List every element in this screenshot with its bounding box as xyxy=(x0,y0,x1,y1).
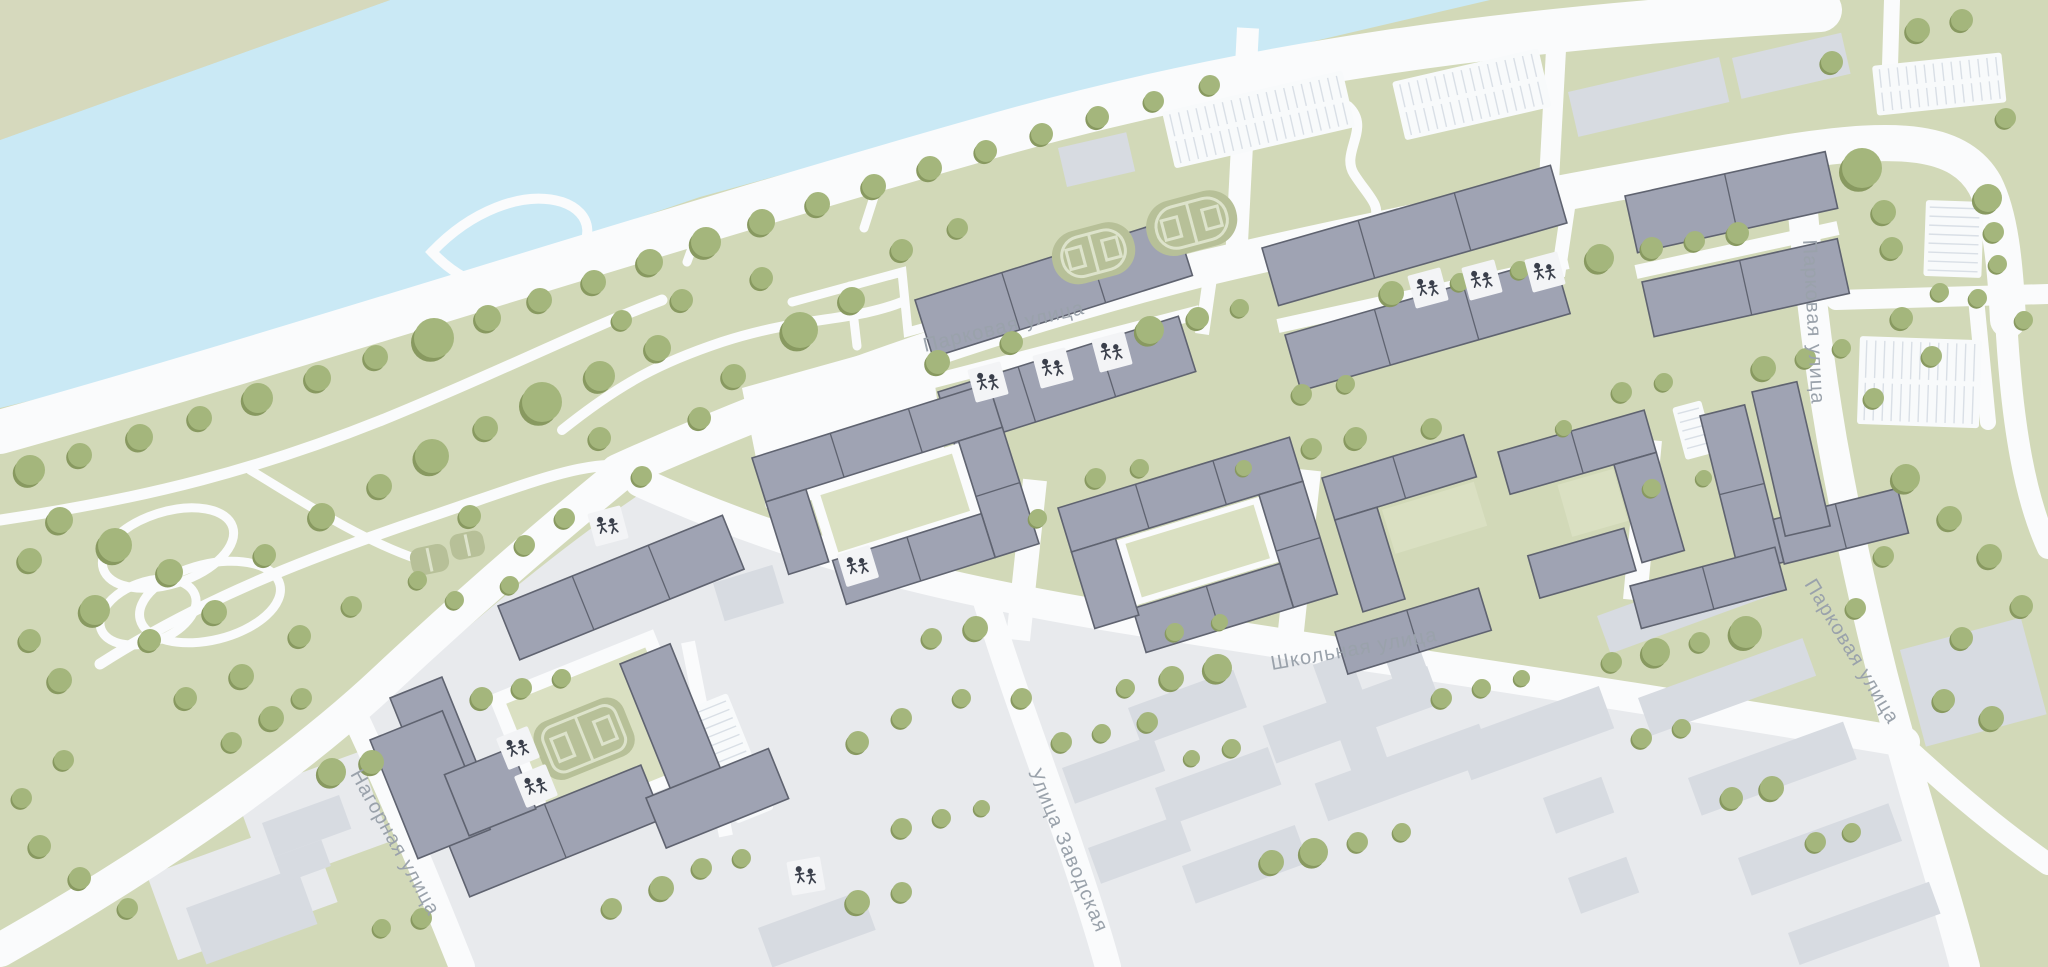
tree-icon xyxy=(553,669,571,687)
tree-icon xyxy=(751,267,773,289)
tree-icon xyxy=(471,687,493,709)
tree-icon xyxy=(230,664,254,688)
tree-icon xyxy=(1969,289,1987,307)
tree-icon xyxy=(1612,382,1632,402)
tree-icon xyxy=(1721,787,1743,809)
tree-icon xyxy=(1974,184,2002,212)
tree-icon xyxy=(1641,237,1663,259)
tree-icon xyxy=(48,668,72,692)
tree-icon xyxy=(1730,616,1762,648)
tree-icon xyxy=(409,571,427,589)
tree-icon xyxy=(501,576,519,594)
tree-icon xyxy=(645,335,671,361)
tree-icon xyxy=(691,227,721,257)
tree-icon xyxy=(98,528,132,562)
tree-icon xyxy=(446,591,464,609)
tree-icon xyxy=(415,439,449,473)
tree-icon xyxy=(414,318,454,358)
tree-icon xyxy=(18,548,42,572)
tree-icon xyxy=(1881,237,1903,259)
tree-icon xyxy=(1138,712,1158,732)
tree-icon xyxy=(602,898,622,918)
tree-icon xyxy=(692,858,712,878)
tree-icon xyxy=(342,596,362,616)
tree-icon xyxy=(1632,728,1652,748)
tree-icon xyxy=(309,503,335,529)
tree-icon xyxy=(1752,356,1776,380)
tree-icon xyxy=(1260,850,1284,874)
tree-icon xyxy=(1052,732,1072,752)
tree-icon xyxy=(1093,724,1111,742)
tree-icon xyxy=(1473,679,1491,697)
tree-icon xyxy=(305,365,331,391)
tree-icon xyxy=(1727,222,1749,244)
tree-icon xyxy=(612,310,632,330)
tree-icon xyxy=(1087,106,1109,128)
tree-icon xyxy=(1892,464,1920,492)
tree-icon xyxy=(69,867,91,889)
tree-icon xyxy=(1184,750,1200,766)
tree-icon xyxy=(1086,468,1106,488)
tree-icon xyxy=(585,361,615,391)
tree-icon xyxy=(637,249,663,275)
tree-icon xyxy=(1951,627,1973,649)
tree-icon xyxy=(1200,75,1220,95)
tree-icon xyxy=(1348,832,1368,852)
tree-icon xyxy=(1643,479,1661,497)
tree-icon xyxy=(368,474,392,498)
tree-icon xyxy=(650,876,674,900)
tree-icon xyxy=(1872,200,1896,224)
tree-icon xyxy=(29,835,51,857)
tree-icon xyxy=(1984,222,2004,242)
tree-icon xyxy=(1160,666,1184,690)
tree-icon xyxy=(1586,244,1614,272)
tree-icon xyxy=(1144,91,1164,111)
tree-icon xyxy=(139,629,161,651)
tree-icon xyxy=(1236,460,1252,476)
tree-icon xyxy=(1760,776,1784,800)
tree-icon xyxy=(222,732,242,752)
tree-icon xyxy=(1422,418,1442,438)
tree-icon xyxy=(1842,148,1882,188)
tree-icon xyxy=(175,687,197,709)
tree-icon xyxy=(459,505,481,527)
tree-icon xyxy=(1922,346,1942,366)
tree-icon xyxy=(733,849,751,867)
tree-icon xyxy=(318,758,346,786)
tree-icon xyxy=(1031,123,1053,145)
tree-icon xyxy=(1187,307,1209,329)
tree-icon xyxy=(1393,823,1411,841)
tree-icon xyxy=(118,898,138,918)
tree-icon xyxy=(974,800,990,816)
tree-icon xyxy=(891,239,913,261)
tree-icon xyxy=(975,140,997,162)
tree-icon xyxy=(243,383,273,413)
tree-icon xyxy=(1864,388,1884,408)
tree-icon xyxy=(1345,427,1367,449)
tree-icon xyxy=(806,192,830,216)
tree-icon xyxy=(892,708,912,728)
tree-icon xyxy=(1806,832,1826,852)
tree-icon xyxy=(1204,654,1232,682)
tree-icon xyxy=(1933,689,1955,711)
tree-icon xyxy=(892,818,912,838)
corner-road xyxy=(1890,0,1892,66)
masterplan-map: Парковая улица Парковая улица Парковая у… xyxy=(0,0,2048,967)
tree-icon xyxy=(1223,739,1241,757)
tree-icon xyxy=(1996,108,2016,128)
tree-icon xyxy=(515,535,535,555)
tree-icon xyxy=(722,364,746,388)
tree-icon xyxy=(1938,506,1962,530)
tree-icon xyxy=(555,508,575,528)
tree-icon xyxy=(839,287,865,313)
tree-icon xyxy=(1602,652,1622,672)
tree-icon xyxy=(782,312,818,348)
tree-icon xyxy=(1846,598,1866,618)
tree-icon xyxy=(1685,231,1705,251)
tree-icon xyxy=(1432,688,1452,708)
tree-icon xyxy=(1231,299,1249,317)
tree-icon xyxy=(80,595,110,625)
tree-icon xyxy=(689,407,711,429)
tree-icon xyxy=(632,466,652,486)
tree-icon xyxy=(254,544,276,566)
tree-icon xyxy=(1300,838,1328,866)
tree-icon xyxy=(1891,307,1913,329)
tree-icon xyxy=(1906,18,1930,42)
tree-icon xyxy=(157,559,183,585)
tree-icon xyxy=(1696,470,1712,486)
tree-icon xyxy=(364,345,388,369)
tree-icon xyxy=(528,288,552,312)
tree-icon xyxy=(188,406,212,430)
tree-icon xyxy=(1843,823,1861,841)
tree-icon xyxy=(1514,670,1530,686)
tree-icon xyxy=(922,628,942,648)
tree-icon xyxy=(474,416,498,440)
tree-icon xyxy=(1302,438,1322,458)
tree-icon xyxy=(1292,384,1312,404)
tree-icon xyxy=(19,629,41,651)
tree-icon xyxy=(1673,719,1691,737)
tree-icon xyxy=(948,218,968,238)
tree-icon xyxy=(918,156,942,180)
tree-icon xyxy=(12,788,32,808)
tree-icon xyxy=(373,919,391,937)
tree-icon xyxy=(54,750,74,770)
tree-icon xyxy=(1117,679,1135,697)
tree-icon xyxy=(1989,255,2007,273)
tree-icon xyxy=(475,305,501,331)
tree-icon xyxy=(522,382,562,422)
tree-icon xyxy=(1833,339,1851,357)
tree-icon xyxy=(1012,688,1032,708)
tree-icon xyxy=(292,688,312,708)
tree-icon xyxy=(892,882,912,902)
tree-icon xyxy=(933,809,951,827)
tree-icon xyxy=(512,678,532,698)
tree-icon xyxy=(1978,544,2002,568)
tree-icon xyxy=(846,890,870,914)
parking-icon xyxy=(1923,200,1984,278)
tree-icon xyxy=(582,270,606,294)
tree-icon xyxy=(1980,706,2004,730)
tree-icon xyxy=(847,731,869,753)
tree-icon xyxy=(1166,623,1184,641)
tree-icon xyxy=(203,600,227,624)
tree-icon xyxy=(749,209,775,235)
tree-icon xyxy=(2015,311,2033,329)
tree-icon xyxy=(1642,638,1670,666)
tree-icon xyxy=(1690,632,1710,652)
tree-icon xyxy=(1821,51,1843,73)
tree-icon xyxy=(127,424,153,450)
tree-icon xyxy=(671,289,693,311)
tree-icon xyxy=(15,455,45,485)
tree-icon xyxy=(1212,614,1228,630)
tree-icon xyxy=(1874,546,1894,566)
tree-icon xyxy=(2011,595,2033,617)
tree-icon xyxy=(1380,281,1404,305)
parking-icon xyxy=(1857,336,1982,428)
tree-icon xyxy=(964,616,988,640)
tree-icon xyxy=(1131,459,1149,477)
tree-icon xyxy=(1931,283,1949,301)
tree-icon xyxy=(289,625,311,647)
tree-icon xyxy=(1655,373,1673,391)
tree-icon xyxy=(1029,509,1047,527)
tree-icon xyxy=(862,174,886,198)
tree-icon xyxy=(1136,316,1164,344)
tree-icon xyxy=(260,706,284,730)
tree-icon xyxy=(589,427,611,449)
tree-icon xyxy=(953,689,971,707)
tree-icon xyxy=(1556,420,1572,436)
tree-icon xyxy=(47,507,73,533)
playground-icon xyxy=(786,856,825,895)
tree-icon xyxy=(1337,375,1355,393)
map-canvas: Парковая улица Парковая улица Парковая у… xyxy=(0,0,2048,967)
tree-icon xyxy=(1951,9,1973,31)
tree-icon xyxy=(68,443,92,467)
